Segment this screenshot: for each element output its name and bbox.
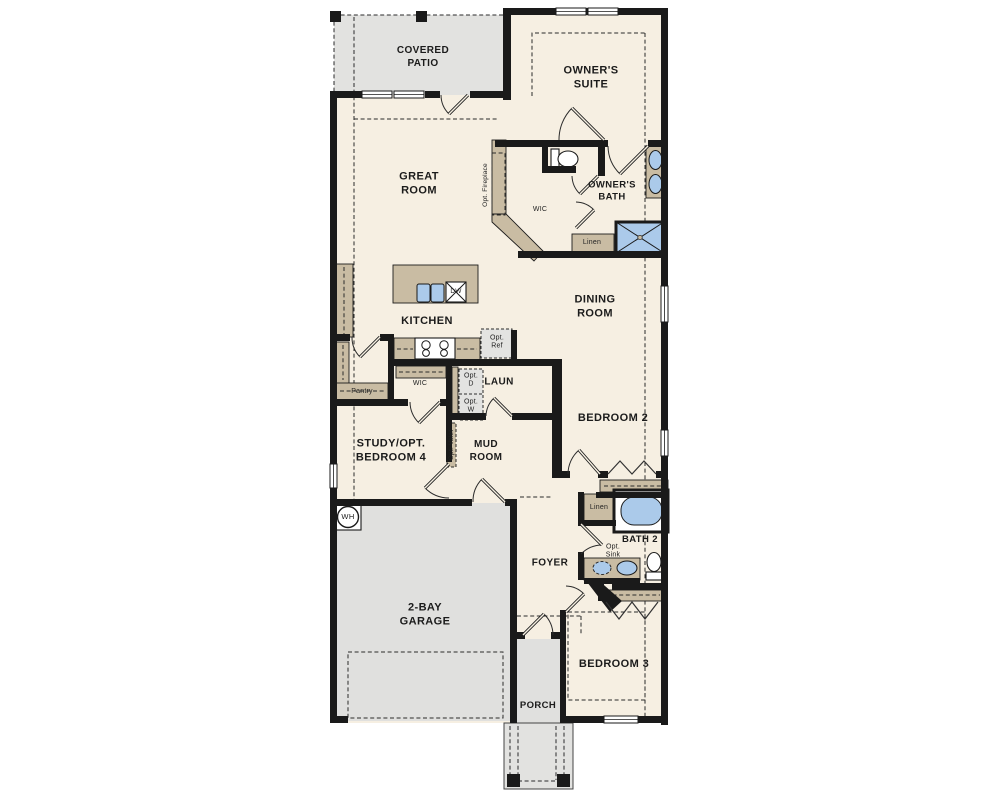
room-label-owners-bath: OWNER'S BATH xyxy=(588,180,636,205)
room-label-bath-2: BATH 2 xyxy=(622,534,658,546)
porch-floor xyxy=(517,639,560,726)
patio-post xyxy=(330,11,341,22)
room-label-pantry: Pantry xyxy=(351,388,372,396)
room-label-foyer: FOYER xyxy=(532,557,568,570)
room-label-dining-room: DINING ROOM xyxy=(575,293,616,322)
bathtub xyxy=(621,497,662,525)
owners-sink-icon xyxy=(649,175,662,194)
toilet-bath2-tank xyxy=(646,572,663,580)
room-label-covered-patio: COVERED PATIO xyxy=(397,44,449,70)
bath2-sink-icon xyxy=(617,561,637,575)
label-linen-hall: Linen xyxy=(590,504,608,512)
room-label-owners-suite: OWNER'S SUITE xyxy=(564,64,619,93)
room-label-porch: PORCH xyxy=(520,700,556,712)
patio-post xyxy=(416,11,427,22)
label-opt-sink: Opt. Sink xyxy=(606,544,620,561)
label-dishwasher: DW xyxy=(450,288,461,296)
label-opt-fireplace: Opt. Fireplace xyxy=(482,163,490,207)
room-label-study: STUDY/OPT. BEDROOM 4 xyxy=(356,437,426,466)
wic-wall-left xyxy=(492,140,506,220)
porch-column xyxy=(557,774,570,787)
room-label-bedroom-2: BEDROOM 2 xyxy=(578,411,648,425)
laundry-counter-strip xyxy=(452,367,458,419)
label-opt-dryer: Opt. D xyxy=(464,373,478,390)
shower-drain xyxy=(638,235,642,239)
island-sink-icon xyxy=(417,284,430,302)
porch-column xyxy=(507,774,520,787)
owners-sink-icon xyxy=(649,151,662,170)
room-label-laundry: LAUN xyxy=(484,376,513,389)
label-opt-ref: Opt. Ref xyxy=(490,335,504,352)
floor-plan-page: COVERED PATIO OWNER'S SUITE GREAT ROOM K… xyxy=(0,0,1000,800)
island-sink-icon xyxy=(431,284,444,302)
room-label-garage: 2-BAY GARAGE xyxy=(400,601,451,630)
room-label-wic-owner: WIC xyxy=(533,206,547,214)
room-label-bedroom-3: BEDROOM 3 xyxy=(579,657,649,671)
room-label-great-room: GREAT ROOM xyxy=(399,170,439,199)
label-water-heater: WH xyxy=(341,512,354,522)
label-opt-valet: Opt. Valet xyxy=(448,430,456,460)
label-linen-owner: Linen xyxy=(583,239,601,247)
toilet-owner-bowl xyxy=(558,151,578,167)
room-label-wic-hall: WIC xyxy=(413,380,427,388)
toilet-bath2-bowl xyxy=(647,553,661,572)
floor-plan-drawing xyxy=(0,0,1000,800)
room-label-kitchen: KITCHEN xyxy=(401,314,453,328)
label-opt-washer: Opt. W xyxy=(464,399,478,416)
room-label-mud-room: MUD ROOM xyxy=(470,438,503,464)
range-icon xyxy=(415,338,455,359)
opt-sink-icon xyxy=(593,562,611,575)
